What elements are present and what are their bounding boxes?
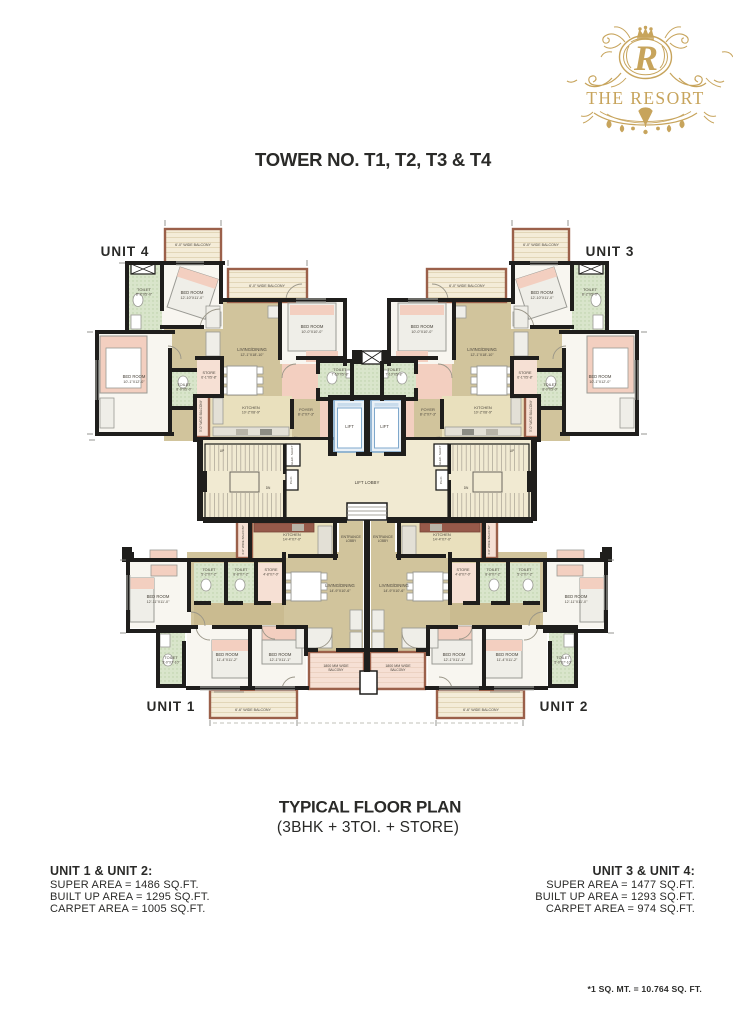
svg-text:LIVING/DINING: LIVING/DINING: [325, 583, 355, 588]
svg-text:UNIT 2: UNIT 2: [540, 699, 589, 714]
svg-text:TOILET: TOILET: [486, 568, 500, 572]
svg-text:11'-4"X11'-2": 11'-4"X11'-2": [497, 658, 518, 662]
svg-text:TOILET: TOILET: [556, 656, 570, 660]
svg-text:KITCHEN: KITCHEN: [283, 532, 301, 537]
svg-text:12'-1"X18'-10": 12'-1"X18'-10": [470, 353, 494, 357]
svg-text:CARPET AREA = 1005 SQ.FT.: CARPET AREA = 1005 SQ.FT.: [50, 903, 206, 915]
svg-text:SUPER AREA = 1486 SQ.FT.: SUPER AREA = 1486 SQ.FT.: [50, 879, 199, 891]
svg-text:UNIT 4: UNIT 4: [101, 244, 150, 259]
svg-text:SUPER AREA = 1477 SQ.FT.: SUPER AREA = 1477 SQ.FT.: [546, 879, 695, 891]
svg-text:10'-1"X12'-0": 10'-1"X12'-0": [123, 380, 145, 384]
svg-text:8'-0"X5'-0": 8'-0"X5'-0": [176, 387, 192, 391]
svg-text:LIFT: LIFT: [380, 424, 389, 429]
svg-text:BED ROOM: BED ROOM: [181, 290, 204, 295]
svg-text:5'-2"X7'-2": 5'-2"X7'-2": [517, 572, 533, 576]
svg-text:6'-1"X5'-8": 6'-1"X5'-8": [201, 375, 217, 379]
svg-text:BALCONY: BALCONY: [390, 668, 406, 672]
svg-text:FOYER: FOYER: [421, 407, 435, 412]
svg-text:BUILT UP AREA = 1295 SQ.FT.: BUILT UP AREA = 1295 SQ.FT.: [50, 891, 210, 903]
svg-text:TOILET: TOILET: [543, 383, 557, 387]
svg-text:8'-2"X7'-3": 8'-2"X7'-3": [298, 413, 315, 417]
svg-text:TOILET: TOILET: [387, 368, 401, 372]
svg-text:THE RESORT: THE RESORT: [586, 88, 704, 108]
svg-text:STORE: STORE: [456, 568, 469, 572]
svg-text:BED ROOM: BED ROOM: [565, 594, 588, 599]
svg-text:UNIT 1 & UNIT 2:: UNIT 1 & UNIT 2:: [50, 864, 153, 878]
svg-text:14'-9"X10'-6": 14'-9"X10'-6": [329, 589, 351, 593]
svg-text:TOILET: TOILET: [583, 287, 597, 292]
svg-text:12'-10"X11'-0": 12'-10"X11'-0": [180, 296, 204, 300]
svg-text:DN: DN: [266, 486, 271, 490]
svg-text:BUILT UP AREA = 1293 SQ.FT.: BUILT UP AREA = 1293 SQ.FT.: [535, 891, 695, 903]
svg-text:4'-0" WIDE BALCONY: 4'-0" WIDE BALCONY: [241, 525, 245, 555]
svg-text:7'-10"X5'-8": 7'-10"X5'-8": [331, 372, 349, 376]
svg-text:10'-0"X10'-0": 10'-0"X10'-0": [411, 330, 433, 334]
svg-text:6'-1"X5'-8": 6'-1"X5'-8": [517, 375, 533, 379]
svg-text:P.H.C.: P.H.C.: [439, 476, 443, 485]
svg-text:6'-6" WIDE BALCONY: 6'-6" WIDE BALCONY: [463, 708, 499, 712]
svg-text:(3BHK + 3TOI. + STORE): (3BHK + 3TOI. + STORE): [277, 819, 459, 836]
svg-text:LIVING/DINING: LIVING/DINING: [379, 583, 409, 588]
svg-text:6'-0" WIDE BALCONY: 6'-0" WIDE BALCONY: [175, 243, 211, 247]
svg-text:BED ROOM: BED ROOM: [147, 594, 170, 599]
svg-text:DN: DN: [464, 486, 469, 490]
svg-text:5'-0" WIDE BALCONY: 5'-0" WIDE BALCONY: [199, 399, 203, 432]
svg-text:14'-4"X7'-0": 14'-4"X7'-0": [433, 538, 452, 542]
svg-text:8'-2"X5'-0": 8'-2"X5'-0": [582, 293, 599, 297]
svg-text:UP: UP: [220, 449, 224, 453]
svg-text:UNIT 3 & UNIT 4:: UNIT 3 & UNIT 4:: [592, 864, 695, 878]
svg-text:6'-0" WIDE BALCONY: 6'-0" WIDE BALCONY: [523, 243, 559, 247]
svg-text:10'-2"X8'-9": 10'-2"X8'-9": [474, 411, 493, 415]
svg-text:STORE: STORE: [202, 371, 215, 375]
svg-text:12'-1"X11'-1": 12'-1"X11'-1": [270, 658, 292, 662]
svg-text:8'-2"X5'-0": 8'-2"X5'-0": [136, 293, 153, 297]
svg-text:BED ROOM: BED ROOM: [301, 324, 324, 329]
svg-text:P.H.C.: P.H.C.: [289, 476, 293, 485]
svg-text:10'-0"X10'-0": 10'-0"X10'-0": [301, 330, 323, 334]
svg-text:BALCONY: BALCONY: [328, 668, 344, 672]
svg-text:BED ROOM: BED ROOM: [531, 290, 554, 295]
svg-text:TOILET: TOILET: [177, 383, 191, 387]
svg-text:4'-8"X7'-0": 4'-8"X7'-0": [455, 572, 471, 576]
svg-text:12'-1"X18'-10": 12'-1"X18'-10": [240, 353, 264, 357]
svg-text:5'-0"X7'-10": 5'-0"X7'-10": [162, 660, 180, 664]
svg-text:5'-2"X7'-2": 5'-2"X7'-2": [201, 572, 217, 576]
svg-text:LOBBY: LOBBY: [378, 539, 389, 543]
svg-text:8'-8"X7'-2": 8'-8"X7'-2": [485, 572, 501, 576]
svg-text:TOILET: TOILET: [202, 568, 216, 572]
svg-text:6'-0" WIDE BALCONY: 6'-0" WIDE BALCONY: [449, 284, 485, 288]
svg-text:BED ROOM: BED ROOM: [443, 652, 466, 657]
svg-text:R: R: [633, 38, 658, 78]
svg-text:TOILET: TOILET: [518, 568, 532, 572]
svg-text:10'-1"X12'-0": 10'-1"X12'-0": [589, 380, 611, 384]
svg-text:7'-10"X5'-8": 7'-10"X5'-8": [385, 372, 403, 376]
svg-text:*1 SQ. MT. = 10.764 SQ. FT.: *1 SQ. MT. = 10.764 SQ. FT.: [587, 984, 702, 994]
svg-text:TYPICAL FLOOR PLAN: TYPICAL FLOOR PLAN: [279, 798, 461, 817]
svg-text:TOILET: TOILET: [234, 568, 248, 572]
svg-text:14'-4"X7'-0": 14'-4"X7'-0": [283, 538, 302, 542]
svg-text:KITCHEN: KITCHEN: [433, 532, 451, 537]
svg-text:UP: UP: [510, 449, 514, 453]
svg-text:KITCHEN: KITCHEN: [242, 405, 260, 410]
svg-text:KITCHEN: KITCHEN: [474, 405, 492, 410]
svg-text:UNIT 3: UNIT 3: [586, 244, 635, 259]
svg-text:12'-11"X11'-0": 12'-11"X11'-0": [565, 600, 588, 604]
svg-text:LOBBY: LOBBY: [346, 539, 357, 543]
svg-text:12'-11"X11'-0": 12'-11"X11'-0": [147, 600, 170, 604]
svg-text:6'-0" WIDE BALCONY: 6'-0" WIDE BALCONY: [249, 284, 285, 288]
svg-text:BED ROOM: BED ROOM: [216, 652, 239, 657]
svg-text:BED ROOM: BED ROOM: [269, 652, 292, 657]
svg-text:LIVING/DINING: LIVING/DINING: [467, 347, 497, 352]
svg-text:10'-2"X8'-9": 10'-2"X8'-9": [242, 411, 261, 415]
svg-text:6'-6" WIDE BALCONY: 6'-6" WIDE BALCONY: [235, 708, 271, 712]
svg-text:5'-0" WIDE BALCONY: 5'-0" WIDE BALCONY: [529, 399, 533, 432]
svg-text:LIVING/DINING: LIVING/DINING: [237, 347, 267, 352]
svg-text:8'-2"X7'-3": 8'-2"X7'-3": [420, 413, 437, 417]
svg-text:UNIT 1: UNIT 1: [147, 699, 196, 714]
svg-text:8'-8"X7'-2": 8'-8"X7'-2": [233, 572, 249, 576]
svg-text:12'-10"X11'-0": 12'-10"X11'-0": [530, 296, 554, 300]
svg-text:BED ROOM: BED ROOM: [496, 652, 519, 657]
svg-text:FOYER: FOYER: [299, 407, 313, 412]
svg-text:ELEC. SHAFT: ELEC. SHAFT: [290, 445, 294, 465]
svg-text:LIFT LOBBY: LIFT LOBBY: [355, 480, 380, 485]
svg-text:TOILET: TOILET: [137, 287, 151, 292]
svg-text:ELEC. SHAFT: ELEC. SHAFT: [438, 445, 442, 465]
svg-text:8'-0"X5'-0": 8'-0"X5'-0": [542, 387, 558, 391]
svg-text:BED ROOM: BED ROOM: [123, 374, 146, 379]
svg-text:4'-8"X7'-0": 4'-8"X7'-0": [263, 572, 279, 576]
svg-text:12'-1"X11'-1": 12'-1"X11'-1": [444, 658, 466, 662]
svg-text:TOILET: TOILET: [164, 656, 178, 660]
svg-text:5'-0"X7'-10": 5'-0"X7'-10": [554, 660, 572, 664]
svg-text:11'-4"X11'-2": 11'-4"X11'-2": [217, 658, 238, 662]
svg-text:TOILET: TOILET: [333, 368, 347, 372]
svg-text:CARPET AREA = 974 SQ.FT.: CARPET AREA = 974 SQ.FT.: [546, 903, 695, 915]
svg-text:BED ROOM: BED ROOM: [589, 374, 612, 379]
svg-text:STORE: STORE: [264, 568, 277, 572]
svg-text:STORE: STORE: [518, 371, 531, 375]
svg-text:BED ROOM: BED ROOM: [411, 324, 434, 329]
svg-text:4'-0" WIDE BALCONY: 4'-0" WIDE BALCONY: [487, 525, 491, 555]
svg-text:14'-9"X10'-6": 14'-9"X10'-6": [383, 589, 405, 593]
svg-text:LIFT: LIFT: [345, 424, 354, 429]
svg-text:TOWER NO. T1, T2, T3 & T4: TOWER NO. T1, T2, T3 & T4: [255, 149, 492, 170]
